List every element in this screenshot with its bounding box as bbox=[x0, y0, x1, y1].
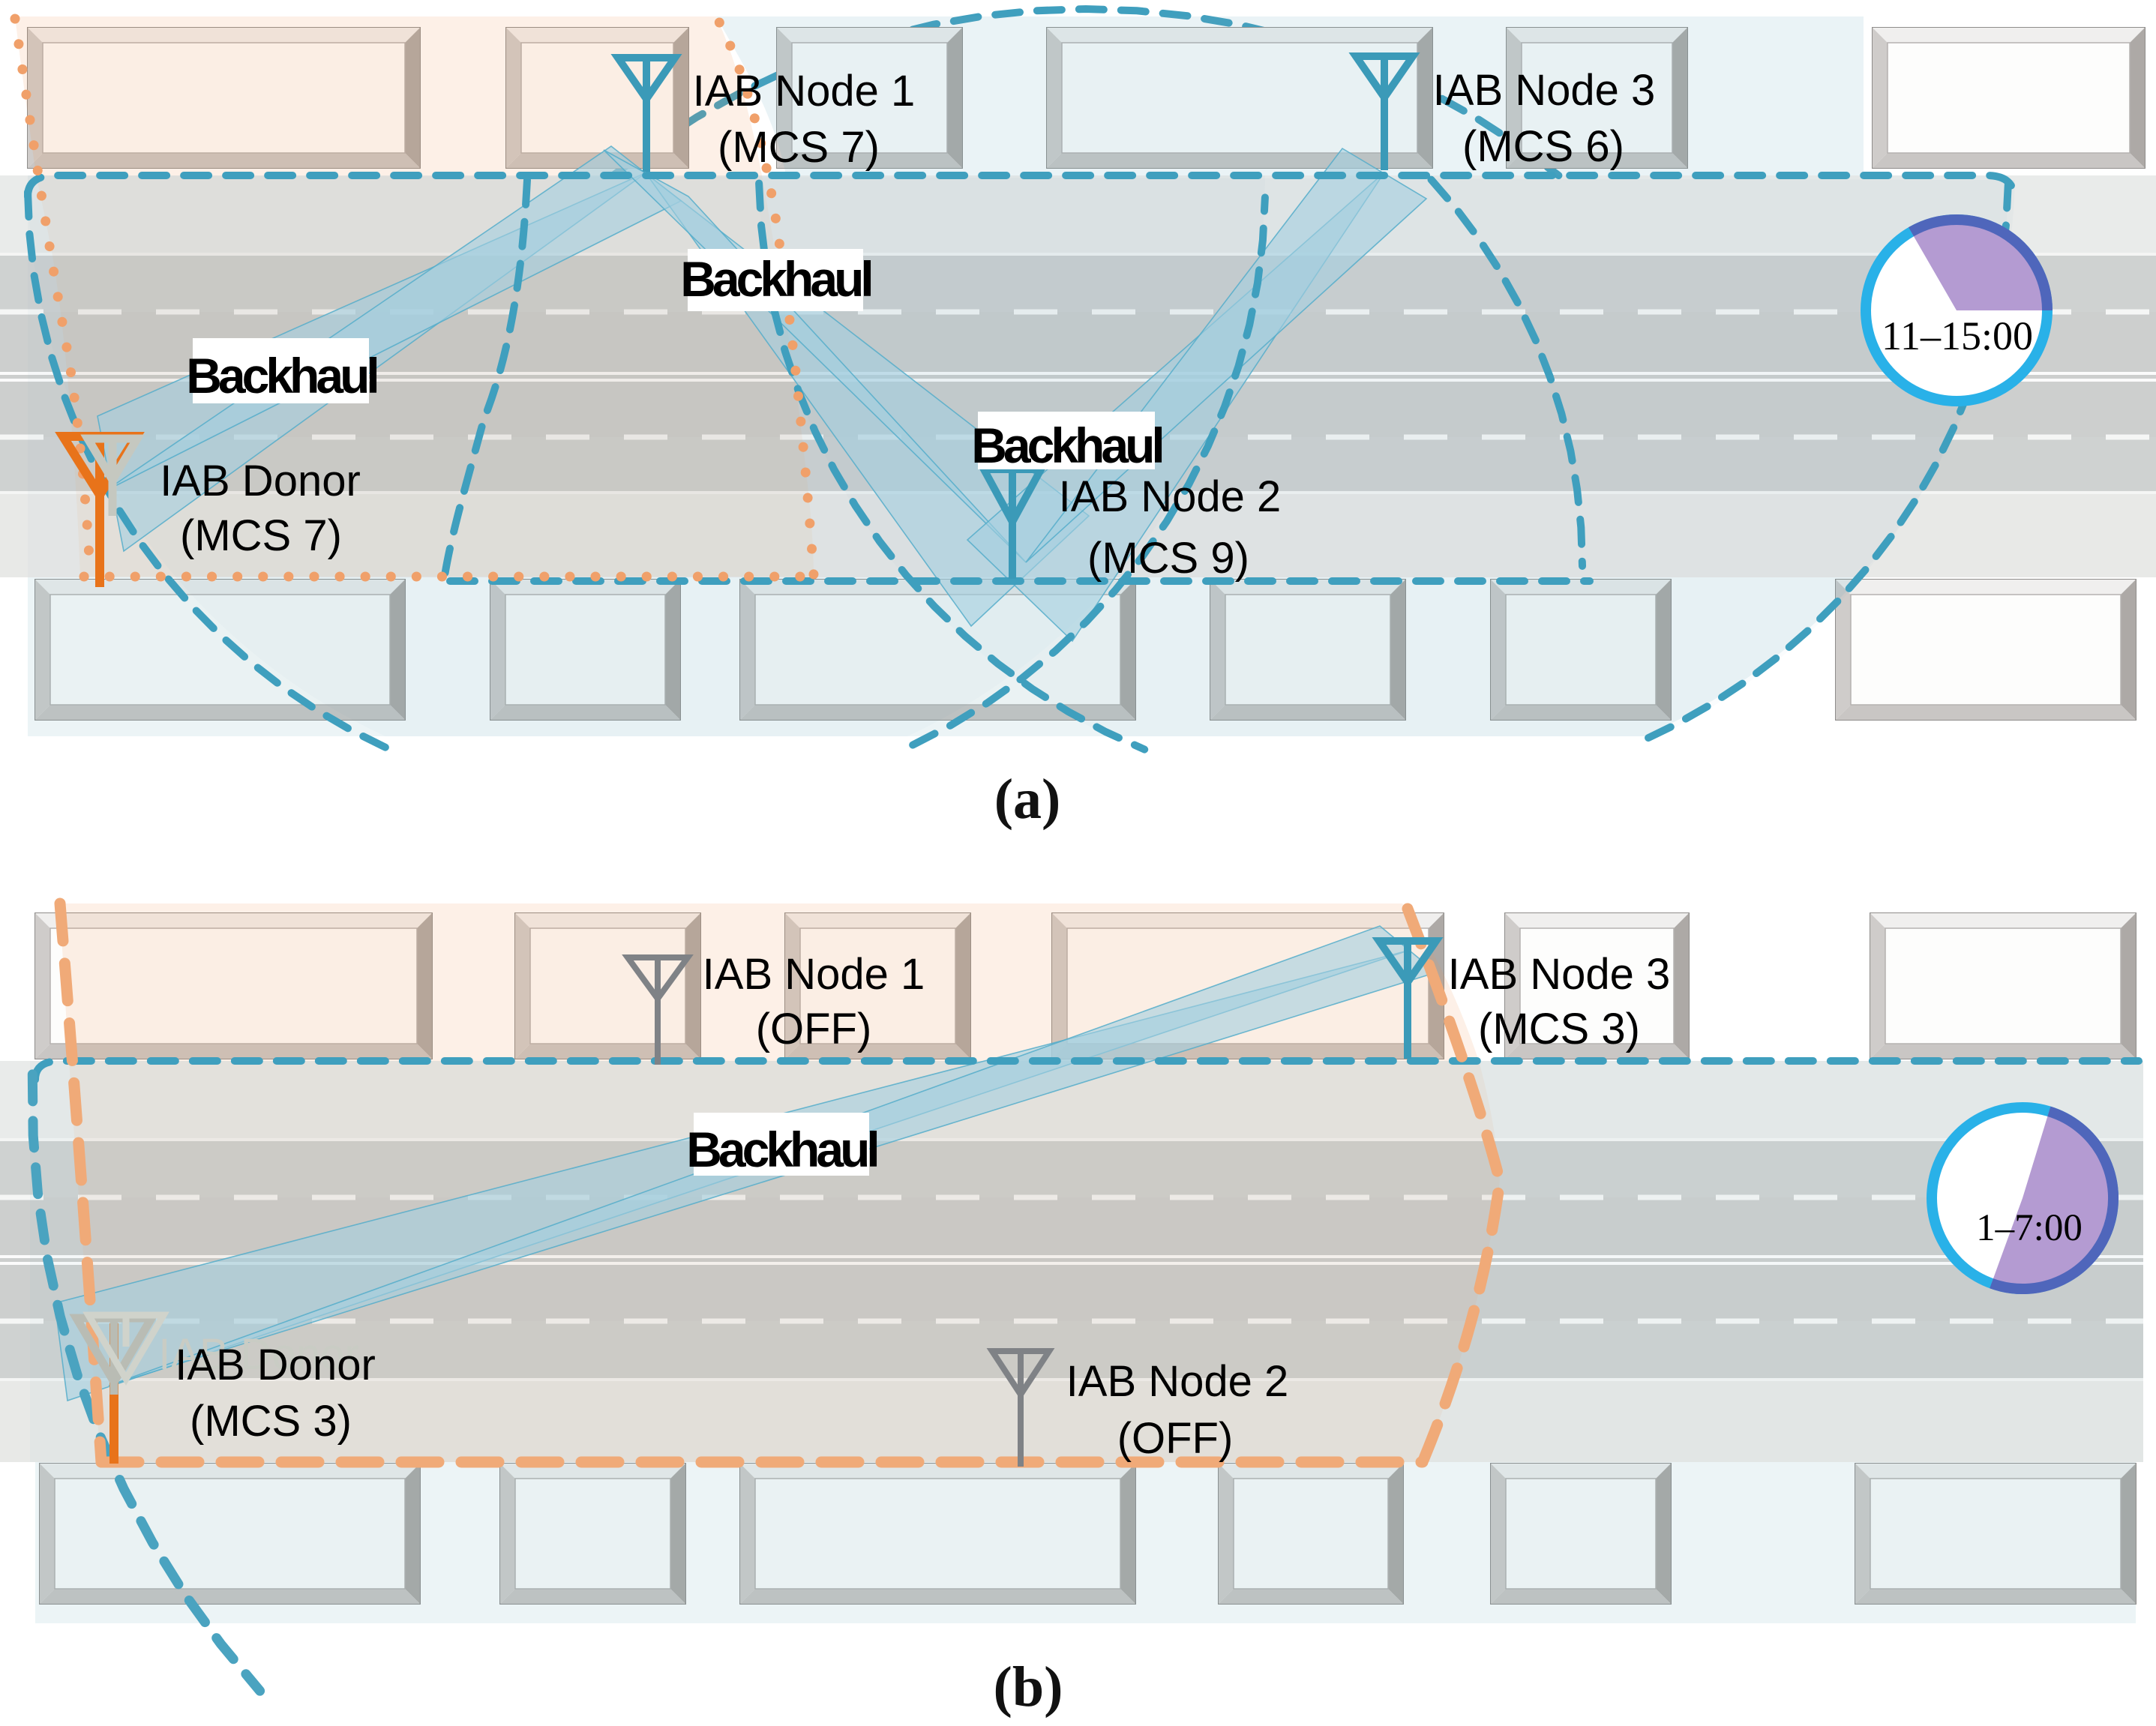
svg-text:(b): (b) bbox=[994, 1656, 1063, 1719]
svg-text:Backhaul: Backhaul bbox=[686, 1122, 877, 1177]
svg-text:Backhaul: Backhaul bbox=[971, 418, 1162, 473]
svg-text:IAB Node 3: IAB Node 3 bbox=[1433, 66, 1656, 115]
svg-text:IAB Node 1: IAB Node 1 bbox=[693, 67, 916, 115]
svg-text:Backhaul: Backhaul bbox=[186, 348, 376, 403]
svg-text:(MCS 7): (MCS 7) bbox=[718, 123, 880, 172]
svg-text:(OFF): (OFF) bbox=[1117, 1414, 1234, 1463]
svg-text:(a): (a) bbox=[994, 768, 1061, 831]
svg-text:IAB Node 2: IAB Node 2 bbox=[1059, 472, 1282, 521]
svg-text:(MCS 9): (MCS 9) bbox=[1087, 534, 1249, 583]
svg-text:(OFF): (OFF) bbox=[756, 1005, 872, 1053]
svg-text:(MCS 3): (MCS 3) bbox=[190, 1397, 352, 1446]
svg-text:IAB Node 1: IAB Node 1 bbox=[703, 950, 925, 999]
svg-text:Backhaul: Backhaul bbox=[680, 251, 871, 307]
svg-text:IAB Donor: IAB Donor bbox=[160, 457, 361, 505]
svg-text:(MCS 6): (MCS 6) bbox=[1462, 122, 1624, 171]
svg-text:(MCS 3): (MCS 3) bbox=[1478, 1005, 1640, 1053]
svg-text:IAB Node 3: IAB Node 3 bbox=[1448, 950, 1671, 999]
svg-text:(MCS 7): (MCS 7) bbox=[180, 511, 342, 560]
svg-text:IAB Node 2: IAB Node 2 bbox=[1066, 1357, 1289, 1406]
svg-text:IAB Donor: IAB Donor bbox=[175, 1341, 376, 1389]
svg-text:11–15:00: 11–15:00 bbox=[1882, 313, 2033, 358]
svg-text:1–7:00: 1–7:00 bbox=[1976, 1207, 2083, 1249]
